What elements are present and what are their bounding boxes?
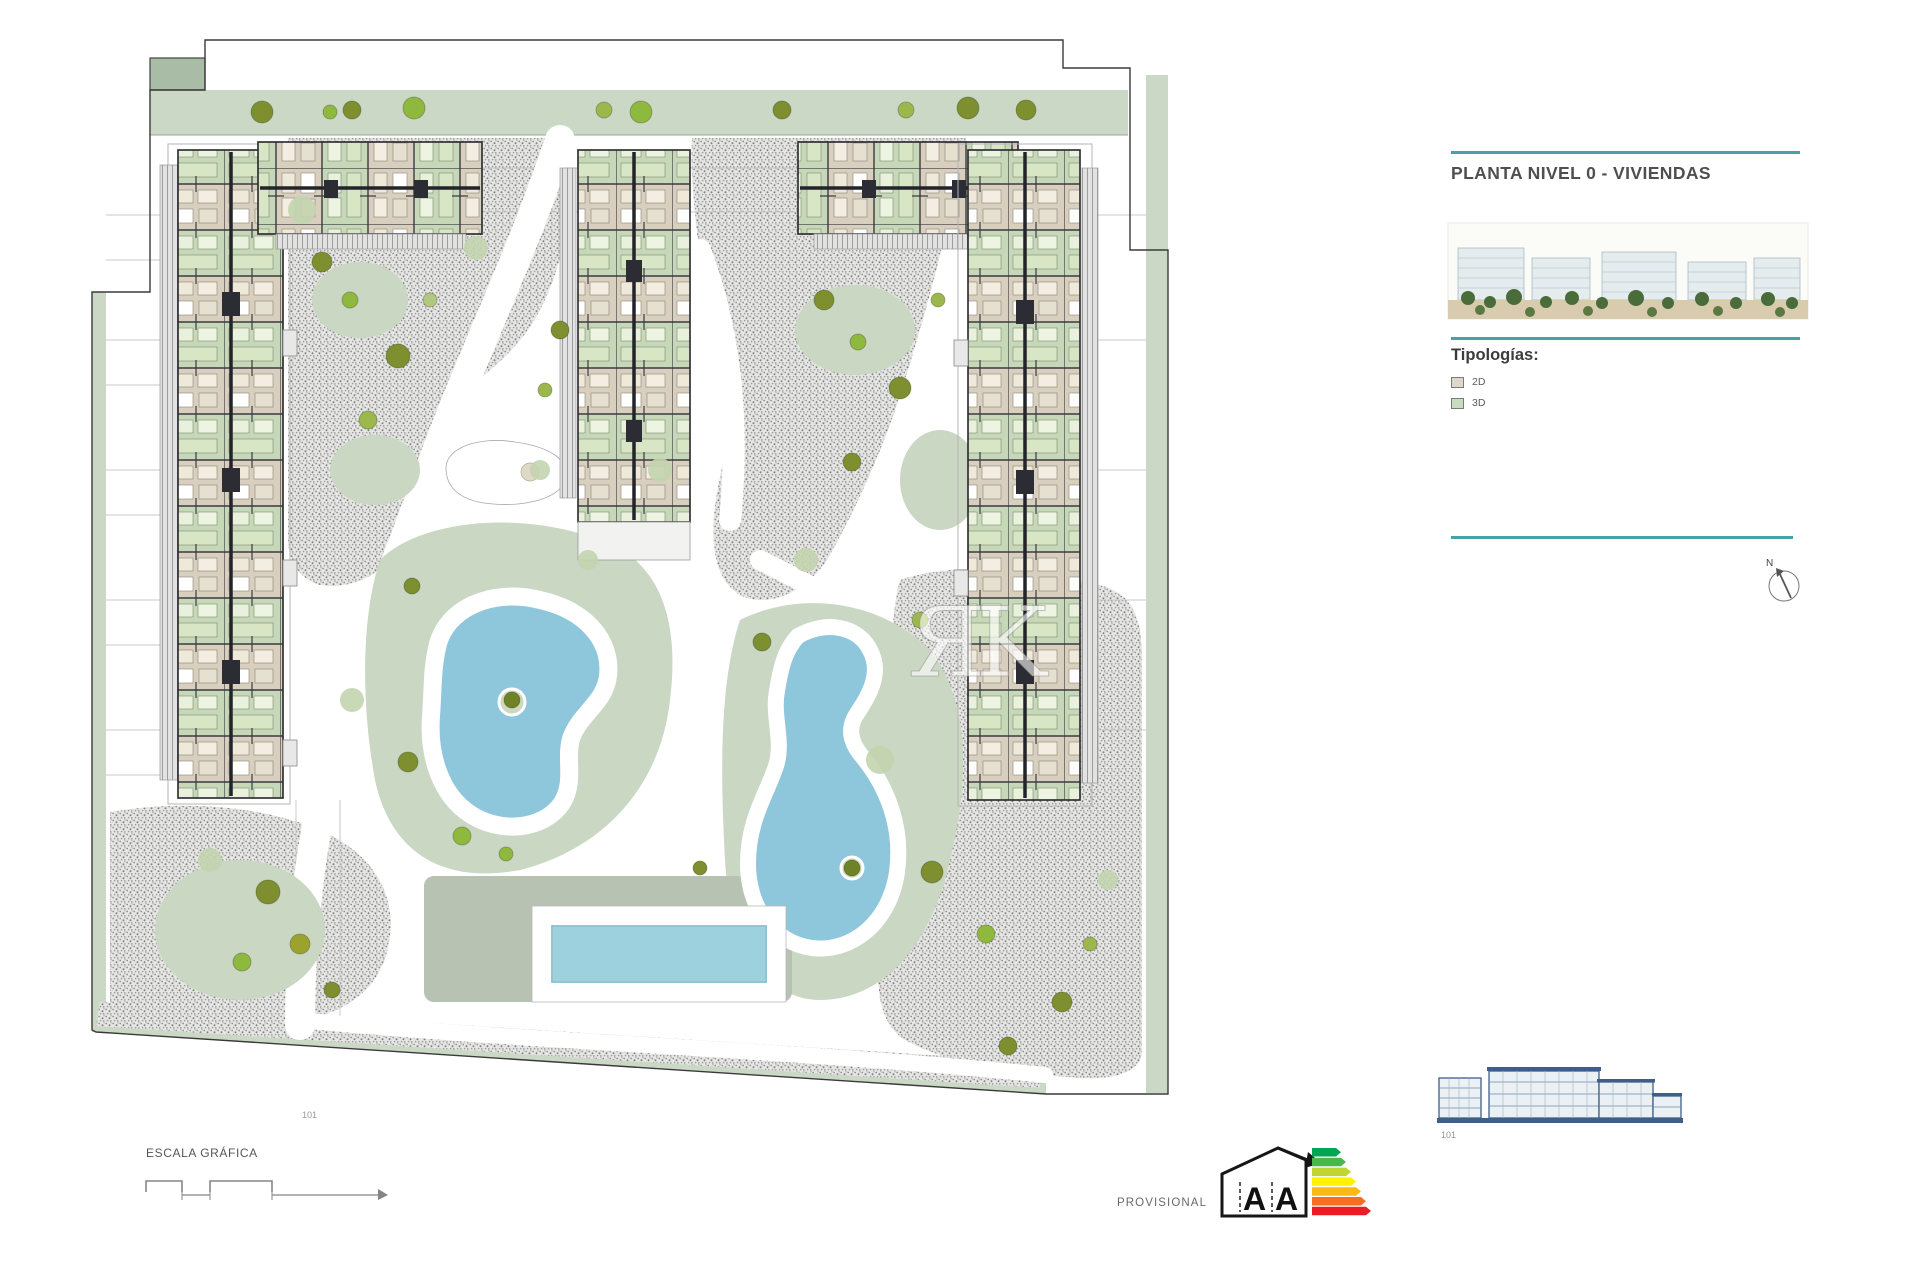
panel-divider-bottom	[1451, 536, 1793, 539]
legend-item-3d: 3D	[1451, 397, 1485, 409]
energy-rating-label: A A	[1222, 1148, 1371, 1217]
energy-bar-d	[1312, 1187, 1361, 1196]
building-elevation-inset: 101	[1437, 1067, 1683, 1140]
north-arrow-icon: N	[1766, 558, 1799, 601]
scale-bar	[146, 1181, 388, 1200]
compass-north-label: N	[1766, 558, 1773, 569]
energy-bar-a1	[1312, 1148, 1341, 1157]
building-northwest	[258, 142, 482, 249]
scale-bar-label: ESCALA GRÁFICA	[146, 1146, 258, 1160]
legend-label-3d: 3D	[1472, 397, 1485, 409]
elevation-ref-label: 101	[1441, 1130, 1456, 1140]
energy-letter-2: A	[1275, 1181, 1298, 1217]
building-center	[560, 150, 690, 560]
lap-pool	[532, 906, 786, 1002]
legend-swatch-2d	[1451, 377, 1464, 388]
typologies-heading: Tipologías:	[1451, 346, 1539, 365]
panel-divider-middle	[1451, 337, 1800, 340]
sheet-title: PLANTA NIVEL 0 - VIVIENDAS	[1451, 163, 1711, 184]
site-ref-label: 101	[302, 1110, 317, 1120]
legend-label-2d: 2D	[1472, 376, 1485, 388]
panel-divider-top	[1451, 151, 1800, 154]
legend-swatch-3d	[1451, 398, 1464, 409]
floor-plan-sheet: ЯK 101 N	[0, 0, 1920, 1280]
energy-bar-c	[1312, 1177, 1356, 1186]
energy-letter-1: A	[1243, 1181, 1266, 1217]
site-plan-canvas: ЯK 101 N	[0, 0, 1920, 1280]
project-render-photo	[1448, 223, 1808, 319]
legend-item-2d: 2D	[1451, 376, 1485, 388]
energy-bar-b	[1312, 1168, 1351, 1177]
watermark: ЯK	[908, 587, 1050, 699]
provisional-label: PROVISIONAL	[1117, 1197, 1207, 1209]
building-east	[954, 144, 1098, 806]
energy-bar-f	[1312, 1207, 1371, 1216]
energy-bar-e	[1312, 1197, 1366, 1206]
energy-bar-a2	[1312, 1158, 1346, 1167]
